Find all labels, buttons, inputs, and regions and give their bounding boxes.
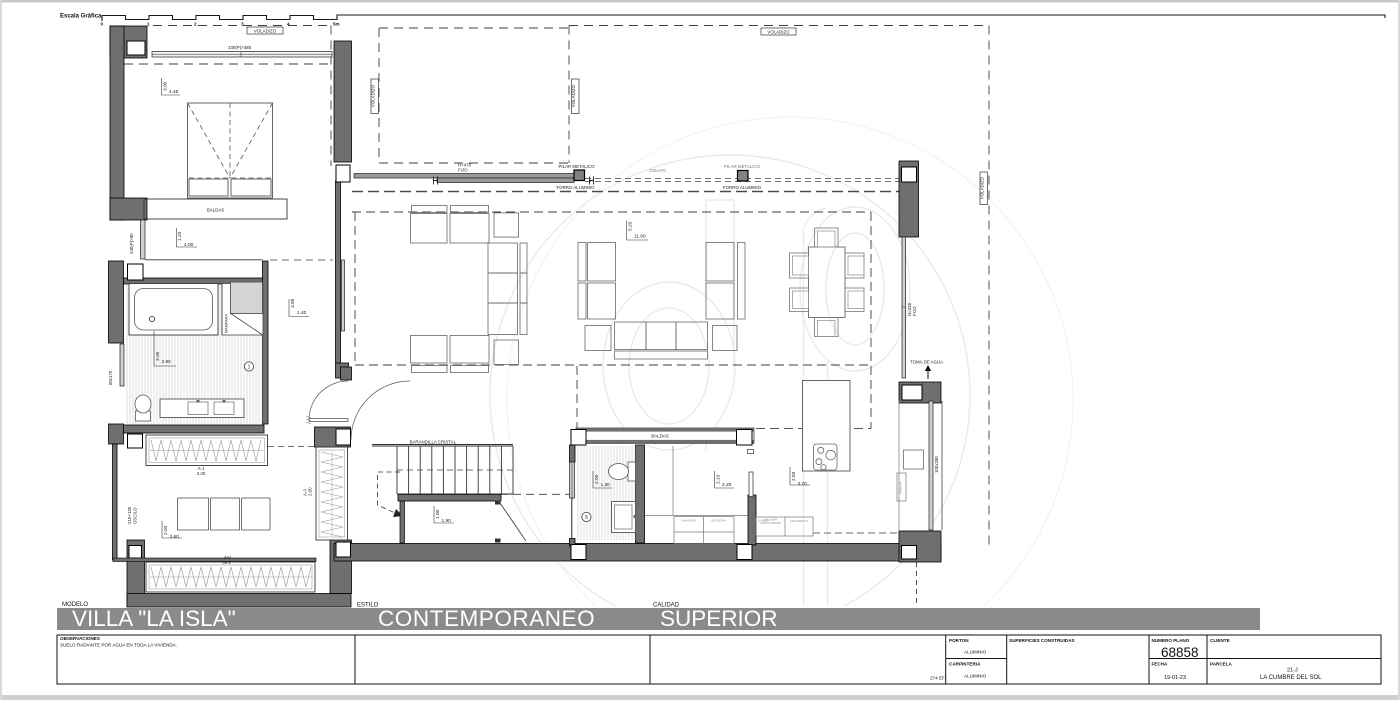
svg-text:FRIGORIFICO: FRIGORIFICO: [790, 519, 808, 523]
svg-text:1: 1: [147, 22, 150, 27]
svg-text:1.40: 1.40: [297, 310, 307, 316]
svg-text:NUMERO PLANO: NUMERO PLANO: [1152, 638, 1190, 643]
svg-text:BALDAS: BALDAS: [651, 434, 668, 439]
svg-text:LA CUMBRE DEL SOL: LA CUMBRE DEL SOL: [1260, 675, 1322, 681]
svg-text:21-J: 21-J: [1287, 668, 1298, 674]
svg-text:HORNO+MICRO: HORNO+MICRO: [760, 521, 781, 525]
svg-text:FECHA: FECHA: [1152, 662, 1169, 667]
svg-text:1.20: 1.20: [177, 231, 183, 241]
svg-text:MAMPARA: MAMPARA: [225, 314, 229, 333]
svg-text:VOLADIZO: VOLADIZO: [571, 84, 576, 107]
svg-text:BARANDILLA CRISTAL: BARANDILLA CRISTAL: [410, 440, 457, 445]
svg-text:5.20: 5.20: [628, 221, 634, 231]
svg-text:FIJO: FIJO: [912, 306, 917, 316]
svg-text:BALDAS: BALDAS: [207, 208, 224, 213]
svg-text:PORTON: PORTON: [949, 638, 969, 643]
svg-text:OBSERVACIONES: OBSERVACIONES: [60, 636, 100, 641]
svg-text:0: 0: [101, 22, 104, 27]
svg-text:3.60: 3.60: [222, 560, 231, 565]
svg-text:2: 2: [194, 22, 197, 27]
svg-text:FIJO: FIJO: [458, 168, 468, 173]
svg-text:PARCELA: PARCELA: [1210, 662, 1233, 667]
svg-text:VOLADIZO: VOLADIZO: [980, 176, 985, 199]
svg-text:SUELO RADIANTE POR AGUA EN TOD: SUELO RADIANTE POR AGUA EN TODA LA VIVIE…: [60, 643, 177, 648]
svg-text:11.90: 11.90: [634, 234, 646, 240]
svg-text:ESTILO: ESTILO: [357, 603, 379, 609]
svg-text:LAVADORA: LAVADORA: [681, 519, 695, 523]
svg-text:Escala Gráfica: Escala Gráfica: [60, 14, 102, 20]
svg-text:ALUMINIO: ALUMINIO: [964, 650, 987, 655]
svg-text:2.00: 2.00: [594, 474, 600, 484]
svg-text:2.00: 2.00: [163, 525, 169, 535]
svg-text:19-01-23: 19-01-23: [1164, 675, 1186, 681]
svg-text:3.60: 3.60: [170, 534, 180, 540]
svg-text:SECADORA: SECADORA: [711, 519, 726, 523]
svg-text:3.05: 3.05: [155, 351, 161, 361]
svg-text:VOLADIZO: VOLADIZO: [371, 84, 376, 107]
svg-text:274 EF: 274 EF: [930, 676, 945, 681]
svg-text:2.50: 2.50: [791, 471, 797, 481]
svg-text:100x280: 100x280: [934, 456, 939, 473]
svg-text:CLIENTE: CLIENTE: [1210, 638, 1230, 643]
svg-text:AUXILIAR: AUXILIAR: [899, 482, 903, 494]
svg-text:CARPINTERIA: CARPINTERIA: [949, 662, 981, 667]
svg-text:230(P)>385: 230(P)>385: [228, 45, 252, 50]
svg-text:1.90: 1.90: [442, 518, 452, 524]
svg-text:1: 1: [248, 365, 251, 371]
svg-text:210+120: 210+120: [127, 506, 132, 524]
svg-text:PILAR METALICO: PILAR METALICO: [559, 164, 596, 169]
svg-text:2.00: 2.00: [308, 487, 313, 496]
svg-text:OSCILO: OSCILO: [133, 507, 138, 524]
svg-text:A-2: A-2: [224, 555, 231, 560]
svg-text:2.30: 2.30: [197, 471, 206, 476]
svg-text:FORRO ALUMINIO: FORRO ALUMINIO: [557, 185, 596, 190]
svg-text:SUPERFICIES CONSTRUIDAS: SUPERFICIES CONSTRUIDAS: [1009, 638, 1075, 643]
svg-text:68858: 68858: [1161, 645, 1199, 660]
svg-text:3.95: 3.95: [290, 298, 296, 308]
svg-text:VOLADIZO: VOLADIZO: [767, 30, 790, 35]
svg-text:SUPERIOR: SUPERIOR: [660, 606, 778, 631]
svg-text:ALUMINIO: ALUMINIO: [964, 674, 987, 679]
svg-text:4.45: 4.45: [169, 89, 179, 95]
svg-text:FORRO ALUMINIO: FORRO ALUMINIO: [723, 185, 762, 190]
svg-text:5: 5: [585, 515, 588, 521]
svg-text:CONTEMPORANEO: CONTEMPORANEO: [378, 606, 595, 631]
svg-text:2.10: 2.10: [716, 474, 722, 484]
svg-text:TOMA DE AGUA: TOMA DE AGUA: [910, 360, 943, 365]
svg-text:230(P)>90: 230(P)>90: [129, 233, 134, 254]
svg-text:PILAR METALICO: PILAR METALICO: [724, 164, 761, 169]
svg-text:5m: 5m: [333, 22, 340, 27]
svg-text:VOLADIZO: VOLADIZO: [254, 29, 277, 34]
svg-text:4.00: 4.00: [184, 242, 194, 248]
svg-text:80x170: 80x170: [108, 370, 113, 385]
svg-text:1.30: 1.30: [601, 482, 611, 488]
svg-text:COLUMNA: COLUMNA: [764, 518, 778, 522]
svg-text:3.00: 3.00: [163, 81, 169, 91]
svg-text:2.95: 2.95: [162, 359, 172, 365]
svg-text:VILLA "LA ISLA": VILLA "LA ISLA": [72, 606, 236, 631]
svg-text:1.00: 1.00: [435, 509, 441, 519]
svg-text:2.20: 2.20: [722, 482, 732, 488]
svg-text:3.70: 3.70: [798, 481, 808, 487]
svg-text:250x470: 250x470: [649, 168, 666, 173]
